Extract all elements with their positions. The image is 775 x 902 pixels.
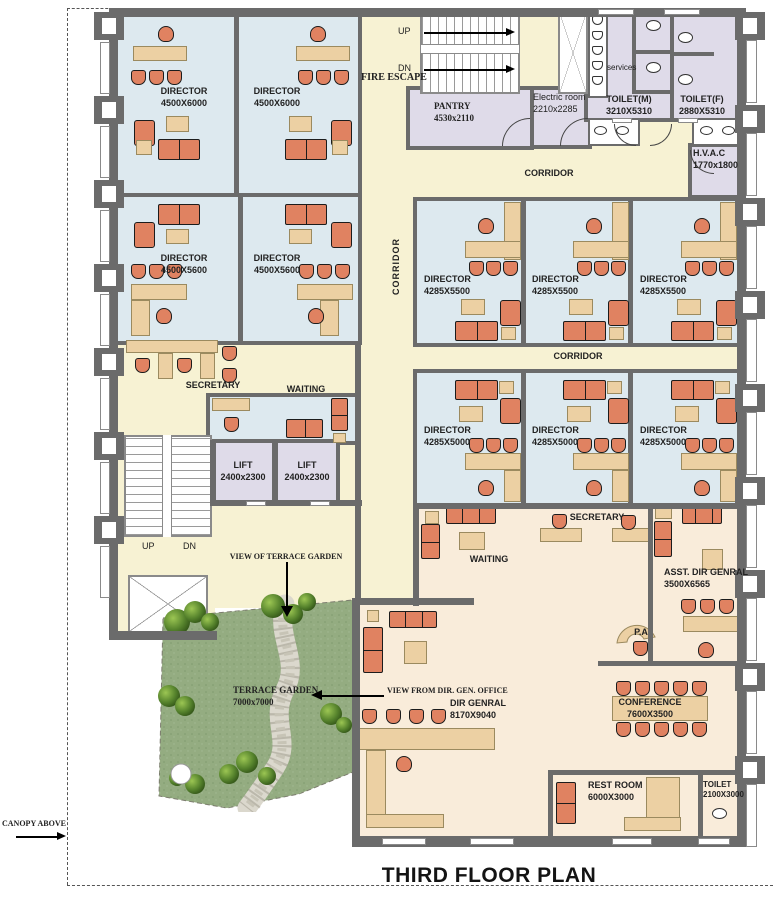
- wall-segment: [548, 770, 744, 775]
- chair-icon: [654, 722, 669, 737]
- table-icon: [501, 327, 516, 340]
- table-icon: [333, 433, 346, 443]
- chair-icon: [135, 358, 150, 373]
- window-icon: [100, 126, 110, 178]
- chair-icon: [469, 261, 484, 276]
- up-arrow-line: [424, 32, 508, 34]
- label-waiting-lower: WAITING: [470, 554, 509, 566]
- desk-icon: [612, 470, 629, 502]
- table-icon: [404, 641, 427, 664]
- column-icon: [94, 516, 124, 544]
- sofa-icon: [158, 139, 200, 160]
- chair-icon: [310, 26, 326, 42]
- desk-icon: [624, 817, 681, 831]
- column-icon: [94, 348, 124, 376]
- wall-segment: [113, 631, 217, 640]
- table-icon: [499, 381, 514, 394]
- table-icon: [332, 140, 348, 155]
- canopy-arrow-icon: [57, 832, 66, 840]
- armchair-icon: [608, 398, 629, 424]
- page-title: THIRD FLOOR PLAN: [382, 864, 596, 888]
- chair-icon: [478, 480, 494, 496]
- chair-icon: [224, 417, 239, 432]
- chair-icon: [594, 438, 609, 453]
- label-director-d3: DIRECTOR4285X5000: [640, 425, 687, 448]
- dn-arrow-line: [424, 69, 508, 71]
- wall-segment: [352, 600, 360, 840]
- label-director-b1: DIRECTOR4500X5600: [161, 253, 208, 276]
- chair-icon: [386, 709, 401, 724]
- label-canopy: CANOPY ABOVE: [2, 819, 66, 829]
- sofa-icon: [421, 524, 440, 559]
- table-icon: [609, 327, 624, 340]
- window-icon: [746, 691, 757, 754]
- desk-icon: [358, 728, 495, 750]
- desk-icon: [126, 340, 218, 353]
- wall-segment: [413, 503, 744, 509]
- chair-icon: [158, 26, 174, 42]
- chair-icon: [586, 218, 602, 234]
- desk-icon: [158, 353, 173, 379]
- window-icon: [678, 118, 698, 123]
- label-toilet-m: TOILET(M)3210X5310: [606, 94, 652, 117]
- table-icon: [289, 229, 312, 244]
- chair-icon: [594, 261, 609, 276]
- chair-icon: [577, 438, 592, 453]
- wall-segment: [648, 505, 653, 665]
- desk-icon: [681, 241, 737, 258]
- service-shaft-icon: [558, 12, 588, 94]
- column-icon: [735, 291, 765, 319]
- table-icon: [459, 406, 483, 422]
- table-icon: [166, 116, 189, 132]
- window-icon: [598, 9, 634, 15]
- wall-segment: [355, 345, 361, 605]
- armchair-icon: [608, 300, 629, 326]
- desk-icon: [212, 398, 250, 411]
- wall-segment: [413, 503, 419, 606]
- label-director-d1: DIRECTOR4285X5000: [424, 425, 471, 448]
- chair-icon: [431, 709, 446, 724]
- chair-icon: [131, 70, 146, 85]
- label-toilet-f: TOILET(F)2880X5310: [679, 94, 725, 117]
- canopy-arrow-line: [16, 836, 60, 838]
- wall-segment: [737, 8, 746, 846]
- label-director-c1: DIRECTOR4285X5500: [424, 274, 471, 297]
- chair-icon: [673, 681, 688, 696]
- desk-icon: [200, 353, 215, 379]
- toilet-icon: [678, 32, 693, 43]
- chair-icon: [698, 642, 714, 658]
- column-icon: [735, 663, 765, 691]
- chair-icon: [409, 709, 424, 724]
- sofa-icon: [654, 521, 672, 557]
- chair-icon: [317, 264, 332, 279]
- column-icon: [735, 105, 765, 133]
- window-icon: [746, 598, 757, 661]
- desk-icon: [297, 284, 353, 300]
- desk-icon: [465, 453, 521, 470]
- table-icon: [715, 381, 730, 394]
- boundary-dash-top: [67, 8, 113, 9]
- sofa-icon: [671, 321, 714, 341]
- table-icon: [459, 532, 485, 550]
- table-icon: [567, 406, 591, 422]
- label-view-terrace: VIEW OF TERRACE GARDEN: [230, 552, 343, 562]
- label-toilet-small: TOILET2100X3000: [703, 780, 744, 801]
- window-icon: [746, 412, 757, 475]
- chair-icon: [486, 261, 501, 276]
- garden-pot-icon: [171, 764, 191, 784]
- chair-icon: [396, 756, 412, 772]
- chair-icon: [156, 308, 172, 324]
- stair-divider: [162, 435, 172, 537]
- chair-icon: [702, 438, 717, 453]
- label-director-b2: DIRECTOR4500X5600: [254, 253, 301, 276]
- chair-icon: [633, 641, 648, 656]
- toilet-icon: [646, 20, 661, 31]
- wall-segment: [548, 770, 553, 840]
- label-up-main: UP: [142, 541, 155, 553]
- column-icon: [94, 264, 124, 292]
- window-icon: [698, 838, 730, 845]
- chair-icon: [692, 681, 707, 696]
- window-icon: [746, 319, 757, 382]
- armchair-icon: [331, 222, 352, 248]
- chair-icon: [635, 722, 650, 737]
- stair-landing: [421, 44, 519, 54]
- label-pa: P.A: [634, 627, 648, 639]
- view-dirgen-arrow-icon: [311, 690, 322, 700]
- window-icon: [746, 133, 757, 196]
- chair-icon: [167, 70, 182, 85]
- chair-icon: [299, 264, 314, 279]
- window-icon: [100, 294, 110, 346]
- floor-plan: DIRECTOR4500X6000 DIRECTOR4500X6000 DIRE…: [0, 0, 775, 902]
- label-lift-1: LIFT2400x2300: [220, 460, 265, 483]
- chair-icon: [577, 261, 592, 276]
- column-icon: [735, 198, 765, 226]
- label-director-c3: DIRECTOR4285X5500: [640, 274, 687, 297]
- label-fire-escape: FIRE ESCAPE: [361, 71, 427, 84]
- wall-segment: [210, 440, 216, 506]
- table-icon: [425, 511, 439, 524]
- desk-icon: [573, 241, 629, 258]
- label-terrace-garden: TERRACE GARDEN7000x7000: [233, 685, 318, 708]
- window-icon: [100, 42, 110, 94]
- basin-icon: [722, 126, 735, 135]
- column-icon: [94, 180, 124, 208]
- chair-icon: [611, 261, 626, 276]
- desk-icon: [131, 284, 187, 300]
- chair-icon: [685, 438, 700, 453]
- desk-icon: [681, 453, 737, 470]
- label-conference: CONFERENCE7600X3500: [618, 697, 681, 720]
- chair-icon: [335, 264, 350, 279]
- table-icon: [367, 610, 379, 622]
- sofa-icon: [363, 627, 383, 673]
- window-icon: [100, 210, 110, 262]
- label-dir-genral: DIR GENRAL8170X9040: [450, 698, 506, 721]
- chair-icon: [702, 261, 717, 276]
- desk-icon: [504, 470, 521, 502]
- chair-icon: [586, 480, 602, 496]
- chair-icon: [334, 70, 349, 85]
- label-up-fire: UP: [398, 26, 411, 38]
- label-pantry: PANTRY4530x2110: [434, 101, 474, 124]
- label-rest-room: REST ROOM6000X3000: [588, 780, 643, 803]
- label-director-a2: DIRECTOR4500X6000: [254, 86, 301, 109]
- sofa-icon: [563, 380, 606, 400]
- window-icon: [664, 9, 700, 15]
- chair-icon: [692, 722, 707, 737]
- chair-icon: [694, 480, 710, 496]
- desk-icon: [465, 241, 521, 258]
- column-icon: [94, 432, 124, 460]
- toilet-icon: [678, 74, 693, 85]
- basin-icon: [700, 126, 713, 135]
- chair-icon: [654, 681, 669, 696]
- table-icon: [166, 229, 189, 244]
- view-terrace-arrow-line: [286, 562, 288, 608]
- column-icon: [94, 96, 124, 124]
- label-electric: Electric room2210x2285: [533, 92, 586, 115]
- basin-icon: [594, 126, 607, 135]
- sofa-icon: [556, 782, 576, 824]
- wall-segment: [674, 52, 714, 56]
- sofa-icon: [158, 204, 200, 225]
- chair-icon: [362, 709, 377, 724]
- label-corridor-2: CORRIDOR: [554, 351, 603, 363]
- chair-icon: [503, 438, 518, 453]
- sofa-icon: [285, 204, 327, 225]
- armchair-icon: [716, 398, 737, 424]
- window-icon: [746, 226, 757, 289]
- column-icon: [735, 12, 765, 40]
- chair-icon: [131, 264, 146, 279]
- chair-icon: [308, 308, 324, 324]
- wall-segment: [598, 661, 744, 666]
- table-icon: [717, 327, 732, 340]
- chair-icon: [719, 261, 734, 276]
- label-secretary-upper: SECRETARY: [186, 380, 241, 392]
- window-icon: [100, 462, 110, 514]
- desk-icon: [573, 453, 629, 470]
- label-director-c2: DIRECTOR4285X5500: [532, 274, 579, 297]
- sofa-icon: [331, 398, 348, 431]
- toilet-icon: [646, 62, 661, 73]
- armchair-icon: [500, 398, 521, 424]
- table-icon: [677, 299, 701, 315]
- label-services: services: [607, 63, 636, 73]
- table-icon: [289, 116, 312, 132]
- chair-icon: [469, 438, 484, 453]
- label-lift-2: LIFT2400x2300: [284, 460, 329, 483]
- window-icon: [746, 784, 757, 847]
- label-asst-dir: ASST. DIR GENRAL3500X6565: [664, 567, 748, 590]
- sofa-icon: [455, 380, 498, 400]
- label-corridor-1: CORRIDOR: [525, 168, 574, 180]
- chair-icon: [222, 346, 237, 361]
- window-icon: [310, 501, 330, 506]
- chair-icon: [611, 438, 626, 453]
- armchair-icon: [500, 300, 521, 326]
- chair-icon: [503, 261, 518, 276]
- desk-icon: [540, 528, 582, 542]
- sofa-icon: [563, 321, 606, 341]
- armchair-icon: [716, 300, 737, 326]
- table-icon: [461, 299, 485, 315]
- window-icon: [246, 501, 266, 506]
- chair-icon: [719, 599, 734, 614]
- wall-segment: [632, 50, 672, 54]
- sofa-icon: [285, 139, 327, 160]
- desk-icon: [612, 528, 652, 542]
- chair-icon: [694, 218, 710, 234]
- table-icon: [675, 406, 699, 422]
- window-icon: [612, 118, 632, 123]
- label-director-d2: DIRECTOR4285X5000: [532, 425, 579, 448]
- view-terrace-arrow-icon: [281, 606, 293, 617]
- desk-icon: [131, 300, 150, 336]
- chair-icon: [149, 70, 164, 85]
- chair-icon: [298, 70, 313, 85]
- chair-icon: [478, 218, 494, 234]
- window-icon: [470, 838, 514, 845]
- toilet-icon: [712, 808, 727, 819]
- up-arrow-icon: [506, 28, 515, 36]
- chair-icon: [616, 722, 631, 737]
- table-icon: [136, 140, 152, 155]
- table-icon: [569, 299, 593, 315]
- sofa-icon: [286, 419, 323, 438]
- window-icon: [746, 505, 757, 568]
- chair-icon: [700, 599, 715, 614]
- label-waiting-upper: WAITING: [287, 384, 326, 396]
- chair-icon: [616, 681, 631, 696]
- label-dn-main: DN: [183, 541, 196, 553]
- sofa-icon: [671, 380, 714, 400]
- desk-icon: [683, 616, 739, 632]
- wall-segment: [113, 8, 744, 17]
- desk-icon: [296, 46, 350, 61]
- window-icon: [612, 838, 652, 845]
- desk-icon: [646, 777, 680, 819]
- desk-icon: [133, 46, 187, 61]
- chair-icon: [685, 261, 700, 276]
- label-hvac: H.V.A.C1770x1800: [693, 148, 738, 171]
- chair-icon: [635, 681, 650, 696]
- label-director-a1: DIRECTOR4500X6000: [161, 86, 208, 109]
- window-icon: [382, 838, 426, 845]
- boundary-dash-left: [67, 8, 68, 885]
- window-icon: [100, 378, 110, 430]
- sofa-icon: [455, 321, 498, 341]
- label-view-dirgen: VIEW FROM DIR. GEN. OFFICE: [387, 686, 508, 696]
- dn-arrow-icon: [506, 65, 515, 73]
- chair-icon: [486, 438, 501, 453]
- chair-icon: [552, 514, 567, 529]
- column-icon: [735, 477, 765, 505]
- chair-icon: [719, 438, 734, 453]
- view-dirgen-arrow-line: [322, 695, 384, 697]
- window-icon: [746, 40, 757, 103]
- window-icon: [100, 546, 110, 598]
- armchair-icon: [134, 222, 155, 248]
- column-icon: [94, 12, 124, 40]
- label-corridor-vertical: CORRIDOR: [391, 238, 403, 295]
- chair-icon: [316, 70, 331, 85]
- chair-icon: [177, 358, 192, 373]
- label-secretary-lower: SECRETARY: [570, 512, 625, 524]
- wall-segment: [210, 500, 362, 506]
- chair-icon: [673, 722, 688, 737]
- chair-icon: [681, 599, 696, 614]
- desk-icon: [366, 814, 444, 828]
- table-icon: [607, 381, 622, 394]
- desk-icon: [366, 750, 386, 816]
- column-icon: [735, 384, 765, 412]
- sofa-icon: [389, 611, 437, 628]
